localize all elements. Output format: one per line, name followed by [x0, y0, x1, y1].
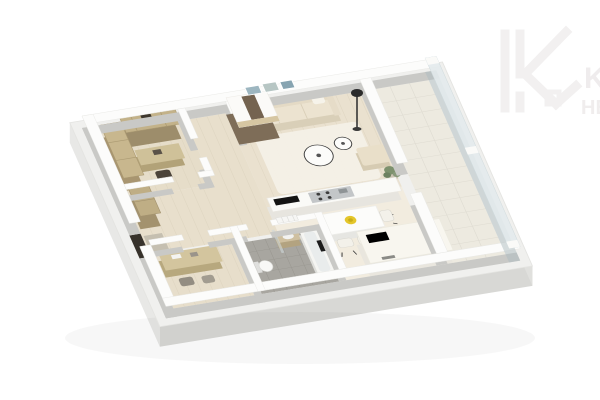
watermark: KI HE [505, 32, 600, 119]
watermark-text-1: KI [584, 62, 600, 95]
house-k-logo-icon [505, 32, 576, 108]
floor-plan-canvas: KI HE [0, 0, 600, 400]
floor-plan-render: KI HE [0, 0, 600, 400]
watermark-text-2: HE [581, 97, 600, 119]
